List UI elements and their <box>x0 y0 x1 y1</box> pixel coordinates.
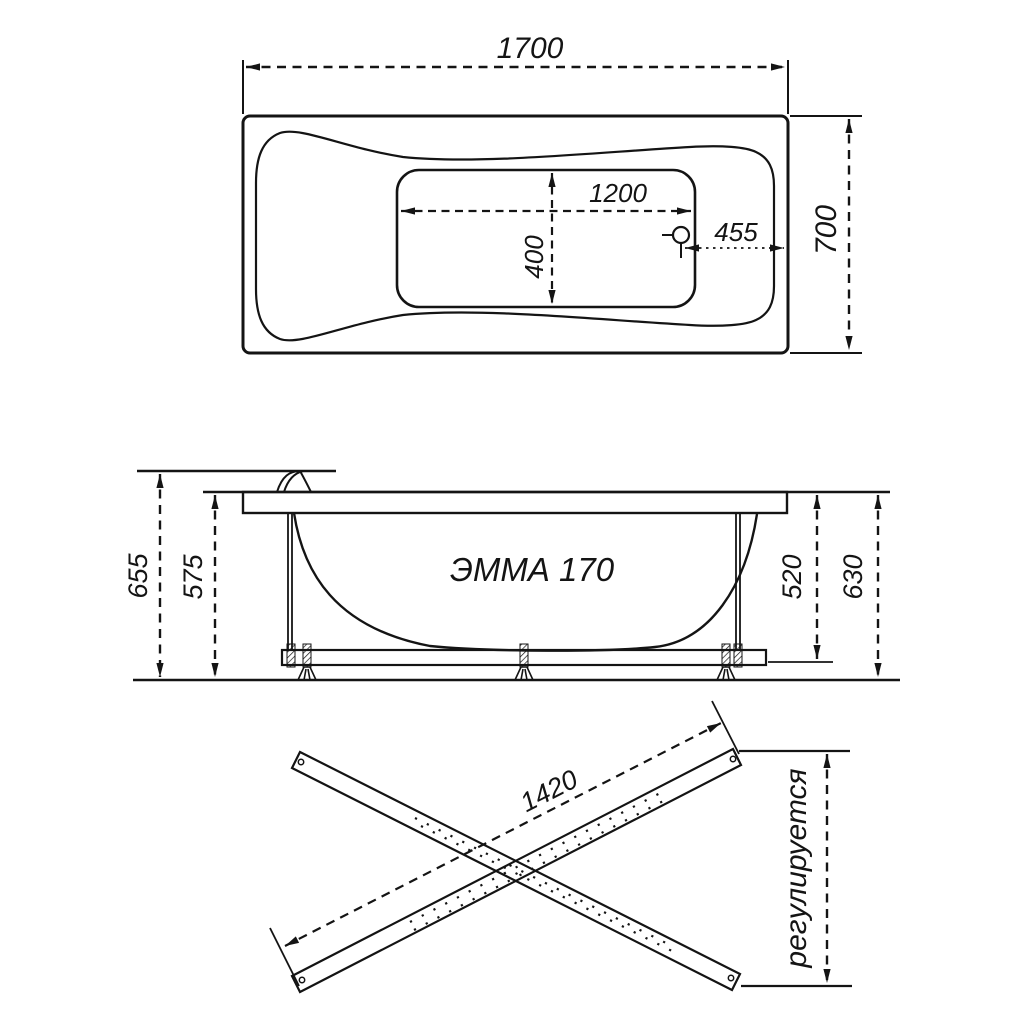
dim-bottom-width: 400 <box>519 173 552 304</box>
dim-label-655: 655 <box>123 552 153 598</box>
dim-frame-height: 630 <box>838 495 878 677</box>
crossbar-ascending <box>292 749 741 992</box>
dim-overall-width: 700 <box>790 116 862 353</box>
bottom-view: 1420 регулируется <box>270 701 852 992</box>
adjustable-feet <box>298 667 735 680</box>
dim-rim-height: 575 <box>178 495 215 677</box>
dim-label-1700: 1700 <box>497 32 564 65</box>
dim-bottom-length: 1200 <box>401 178 691 211</box>
dim-inner-height: 520 <box>777 495 817 659</box>
dim-total-height: 655 <box>123 474 160 677</box>
dim-adjustable: регулируется <box>739 751 852 986</box>
drain-symbol <box>662 227 689 258</box>
crossbar-descending <box>292 752 740 990</box>
model-label: ЭММА 170 <box>450 551 615 588</box>
dim-label-630: 630 <box>838 554 868 599</box>
dim-label-520: 520 <box>777 554 807 599</box>
dim-crossbar-length: 1420 <box>270 701 739 986</box>
dim-label-1200: 1200 <box>589 178 647 208</box>
adjustable-label: регулируется <box>780 768 813 968</box>
side-view: 655 575 520 630 ЭММА 170 <box>123 471 900 680</box>
dim-drain-offset: 455 <box>685 217 784 248</box>
dim-overall-length: 1700 <box>243 32 788 114</box>
dim-label-700: 700 <box>810 205 843 255</box>
dim-label-400: 400 <box>519 235 549 279</box>
headrest-hump <box>277 471 311 492</box>
threaded-studs <box>287 644 742 667</box>
tub-outer-rect <box>243 116 788 353</box>
bathtub-drawing-svg: 1700 1200 400 455 <box>0 0 1024 1024</box>
dim-label-455: 455 <box>714 217 758 247</box>
rim-apron-box <box>243 492 787 513</box>
dim-label-575: 575 <box>178 553 208 599</box>
technical-drawing-page: 1700 1200 400 455 <box>0 0 1024 1024</box>
top-view: 1700 1200 400 455 <box>243 32 862 353</box>
